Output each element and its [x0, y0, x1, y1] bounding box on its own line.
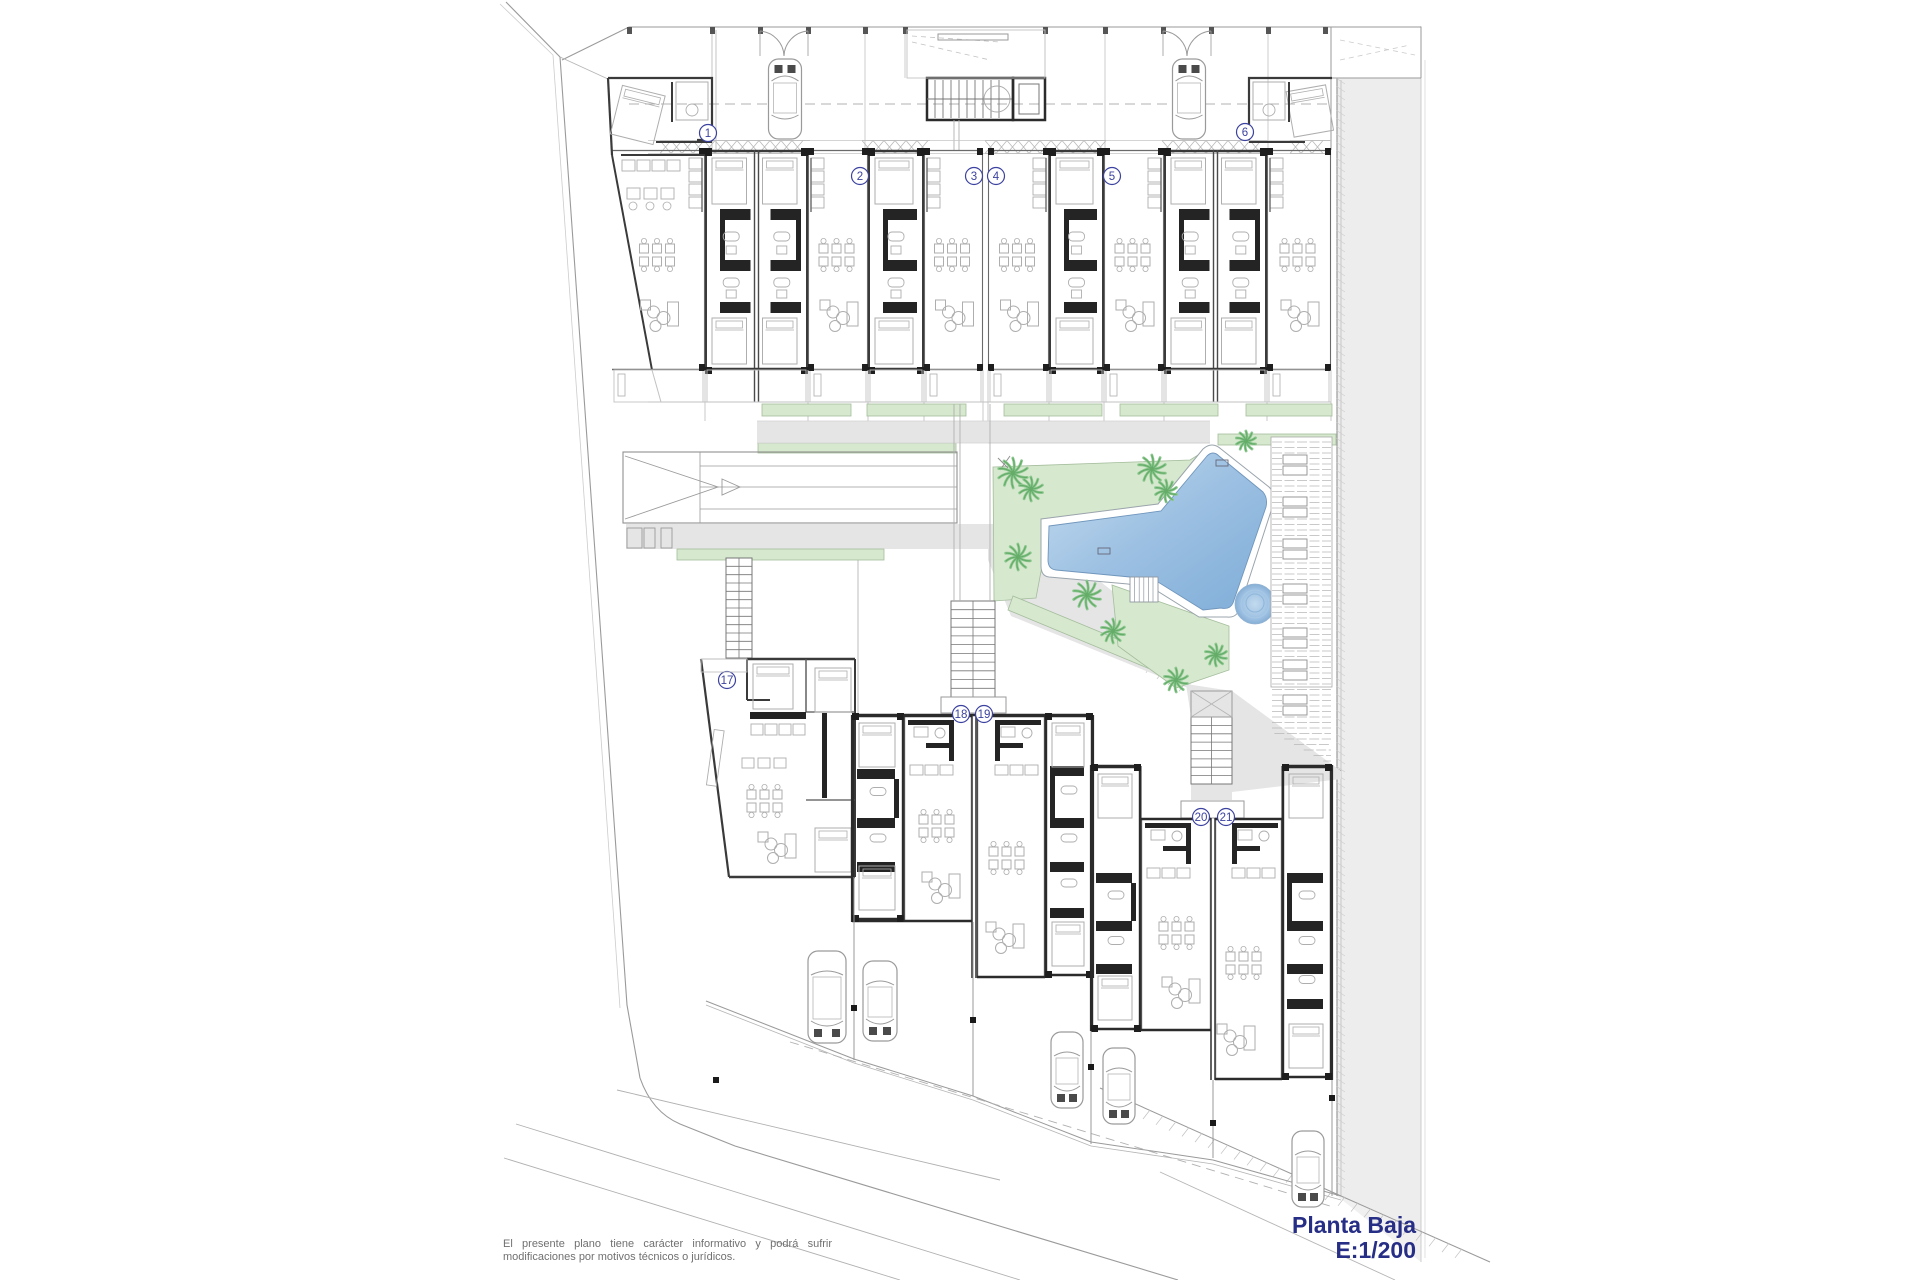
svg-text:5: 5: [1109, 171, 1115, 183]
svg-text:6: 6: [1242, 127, 1248, 139]
svg-text:modificaciones por motivos téc: modificaciones por motivos técnicos o ju…: [503, 1251, 735, 1263]
svg-text:4: 4: [993, 171, 1000, 183]
svg-text:21: 21: [1220, 812, 1233, 824]
svg-text:17: 17: [721, 675, 734, 687]
svg-text:3: 3: [971, 171, 977, 183]
svg-text:1: 1: [705, 128, 711, 140]
svg-text:20: 20: [1195, 812, 1208, 824]
svg-text:Planta Baja: Planta Baja: [1292, 1212, 1416, 1238]
svg-text:18: 18: [955, 709, 968, 721]
svg-text:19: 19: [978, 709, 991, 721]
svg-text:E:1/200: E:1/200: [1335, 1237, 1416, 1263]
svg-text:2: 2: [857, 171, 863, 183]
svg-text:El presente plano tiene caráct: El presente plano tiene carácter informa…: [503, 1238, 832, 1250]
